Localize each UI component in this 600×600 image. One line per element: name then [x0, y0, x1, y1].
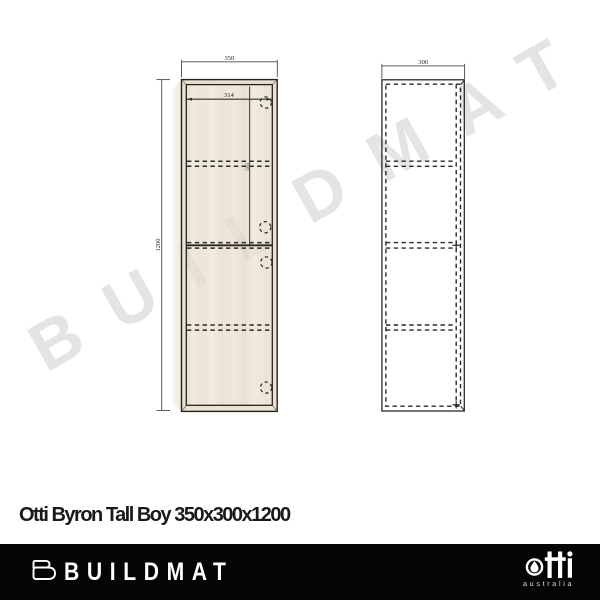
svg-text:581: 581 [245, 162, 251, 171]
svg-text:1200: 1200 [155, 239, 162, 252]
svg-text:australia: australia [523, 580, 574, 588]
svg-text:314: 314 [224, 92, 235, 99]
svg-text:350: 350 [225, 55, 235, 62]
svg-text:300: 300 [418, 59, 428, 66]
